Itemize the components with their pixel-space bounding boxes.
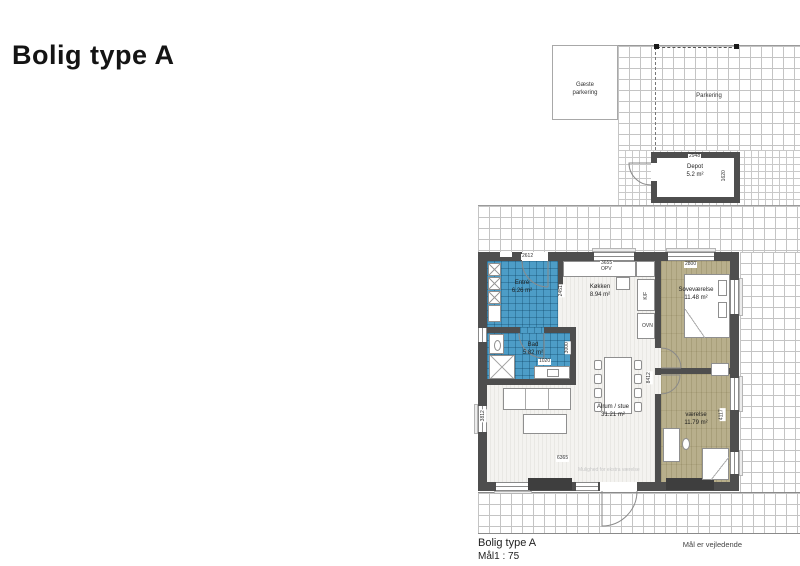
desk bbox=[663, 428, 680, 462]
window-sill bbox=[666, 248, 716, 252]
toilet-bowl bbox=[494, 340, 501, 351]
window bbox=[730, 280, 739, 314]
floor-plan-page: Bolig type A Gæste parkering Parkering D… bbox=[0, 0, 800, 566]
dim-depot-width: 2948 bbox=[688, 154, 701, 160]
chair bbox=[634, 388, 642, 398]
door-arc bbox=[602, 491, 637, 526]
boundary-marker bbox=[734, 44, 739, 49]
window-sill bbox=[474, 404, 478, 434]
paving-east-strip bbox=[740, 252, 800, 492]
page-title: Bolig type A bbox=[12, 40, 175, 71]
hall-wall bbox=[655, 394, 661, 482]
chair bbox=[634, 374, 642, 384]
vaerelse-label: værelse 11.79 m² bbox=[666, 412, 726, 428]
depot-label: Depot 5.2 m² bbox=[667, 164, 723, 180]
koekken-label: Køkken 8.94 m² bbox=[570, 284, 630, 300]
dim-depot-depth: 1620 bbox=[722, 169, 728, 182]
door-arc bbox=[629, 163, 651, 185]
dim-sove-top: 2800 bbox=[684, 262, 697, 268]
dim-alrum-left: 3812 bbox=[481, 409, 487, 422]
cabinet bbox=[488, 305, 501, 322]
chair bbox=[594, 374, 602, 384]
dim-vanity: 1020 bbox=[538, 359, 551, 365]
sink bbox=[547, 369, 559, 377]
window bbox=[496, 482, 530, 491]
window bbox=[576, 482, 598, 491]
window bbox=[594, 252, 634, 261]
dim-entre-side: 2451 bbox=[559, 284, 565, 297]
bad-label: Bad 5.82 m² bbox=[505, 342, 561, 358]
hall-wall bbox=[655, 261, 661, 348]
dim-vaerelse-side: 4117 bbox=[720, 408, 726, 421]
bed-fold-line bbox=[711, 457, 729, 480]
window bbox=[478, 328, 487, 342]
alrum-label: Alrum / stue 31.21 m² bbox=[582, 404, 644, 420]
depot-door-opening bbox=[651, 163, 657, 181]
window-sill bbox=[739, 278, 743, 316]
window-sill bbox=[494, 491, 532, 494]
coffee-table bbox=[523, 414, 567, 434]
chair bbox=[594, 388, 602, 398]
dim-bad-side: 3000 bbox=[565, 341, 571, 354]
window-sill bbox=[592, 248, 636, 252]
terrace-door-opening bbox=[600, 482, 637, 491]
shelf bbox=[711, 363, 729, 376]
parking-label: Parkering bbox=[618, 93, 800, 101]
dim-alrum-width: 6365 bbox=[556, 456, 569, 462]
dim-entre-door: 2612 bbox=[521, 254, 534, 260]
fridge-label: K/F bbox=[644, 291, 650, 301]
window-sill bbox=[739, 450, 743, 476]
partition-wall bbox=[487, 327, 520, 333]
bed-fold-line bbox=[685, 309, 705, 338]
site-boundary-dashed-line bbox=[657, 47, 737, 48]
bed bbox=[684, 274, 730, 338]
shower bbox=[489, 355, 515, 379]
terrace-south bbox=[478, 492, 800, 534]
footer-plan-name: Bolig type A bbox=[478, 537, 536, 549]
kitchen-corner-cabinet bbox=[636, 261, 655, 277]
guest-parking-label: Gæste parkering bbox=[552, 82, 618, 97]
pillow bbox=[718, 302, 727, 318]
wall-vent bbox=[500, 252, 512, 257]
vanity bbox=[534, 366, 570, 379]
window bbox=[730, 452, 739, 474]
bed bbox=[702, 448, 729, 480]
door-arc bbox=[661, 375, 680, 394]
entre-label: Entré 6.26 m² bbox=[492, 280, 552, 296]
sliding-door-panel bbox=[528, 478, 572, 490]
toilet bbox=[489, 334, 504, 354]
chair bbox=[594, 360, 602, 370]
partition-wall bbox=[570, 333, 576, 379]
paving-north-band bbox=[478, 205, 800, 252]
door-arc bbox=[661, 348, 681, 368]
window-sill bbox=[739, 376, 743, 412]
sovevaerelse-label: Soveværelse 11.48 m² bbox=[666, 287, 726, 303]
desk-chair bbox=[682, 438, 690, 450]
boundary-marker bbox=[654, 44, 659, 49]
extra-room-note: Mulighed for ekstra værelse bbox=[578, 458, 640, 476]
partition-wall bbox=[487, 379, 576, 385]
chair bbox=[634, 360, 642, 370]
oven-label: OVN bbox=[641, 324, 654, 330]
sofa bbox=[503, 388, 571, 410]
oven: OVN bbox=[637, 313, 655, 339]
footer-scale: Mål1 : 75 bbox=[478, 551, 519, 562]
footer-disclaimer: Mål er vejledende bbox=[640, 540, 742, 549]
window bbox=[668, 252, 714, 261]
fridge-freezer: K/F bbox=[637, 279, 655, 311]
wardrobe bbox=[488, 263, 501, 276]
window bbox=[730, 378, 739, 410]
dim-hall: 8412 bbox=[647, 371, 653, 384]
dishwasher-label: OPV bbox=[600, 267, 613, 273]
